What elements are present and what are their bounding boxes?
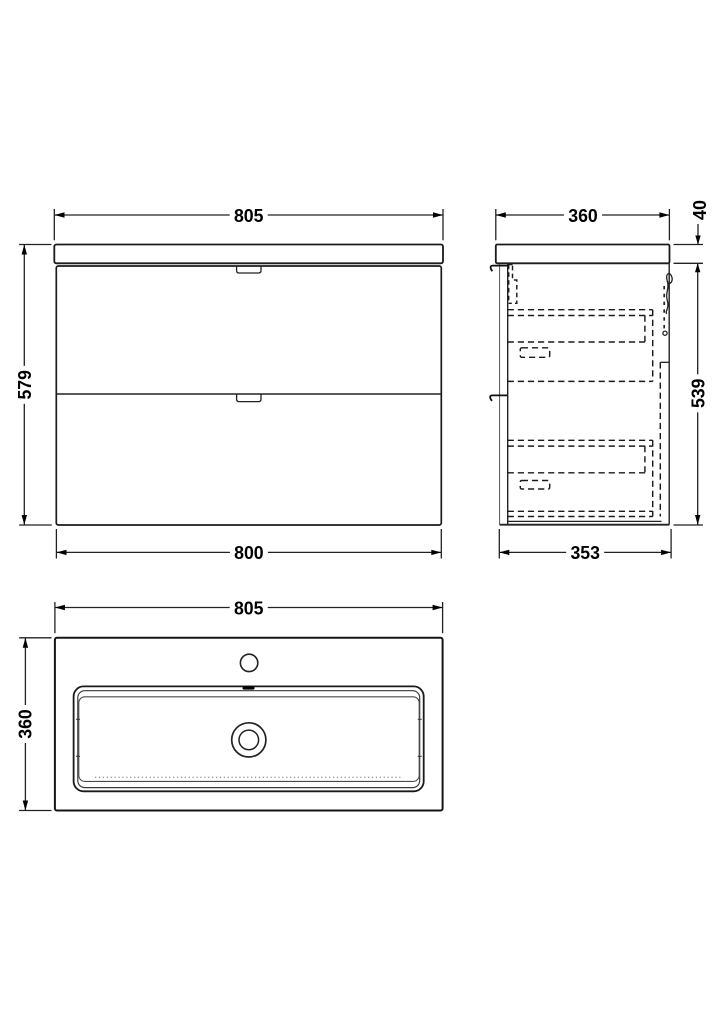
svg-text:805: 805 (234, 205, 264, 226)
svg-text:360: 360 (14, 709, 35, 739)
svg-text:40: 40 (689, 200, 710, 220)
svg-text:805: 805 (234, 597, 264, 618)
svg-text:353: 353 (570, 542, 600, 563)
svg-text:579: 579 (14, 370, 35, 400)
svg-text:539: 539 (687, 379, 708, 409)
svg-text:800: 800 (234, 542, 264, 563)
svg-text:360: 360 (568, 205, 598, 226)
